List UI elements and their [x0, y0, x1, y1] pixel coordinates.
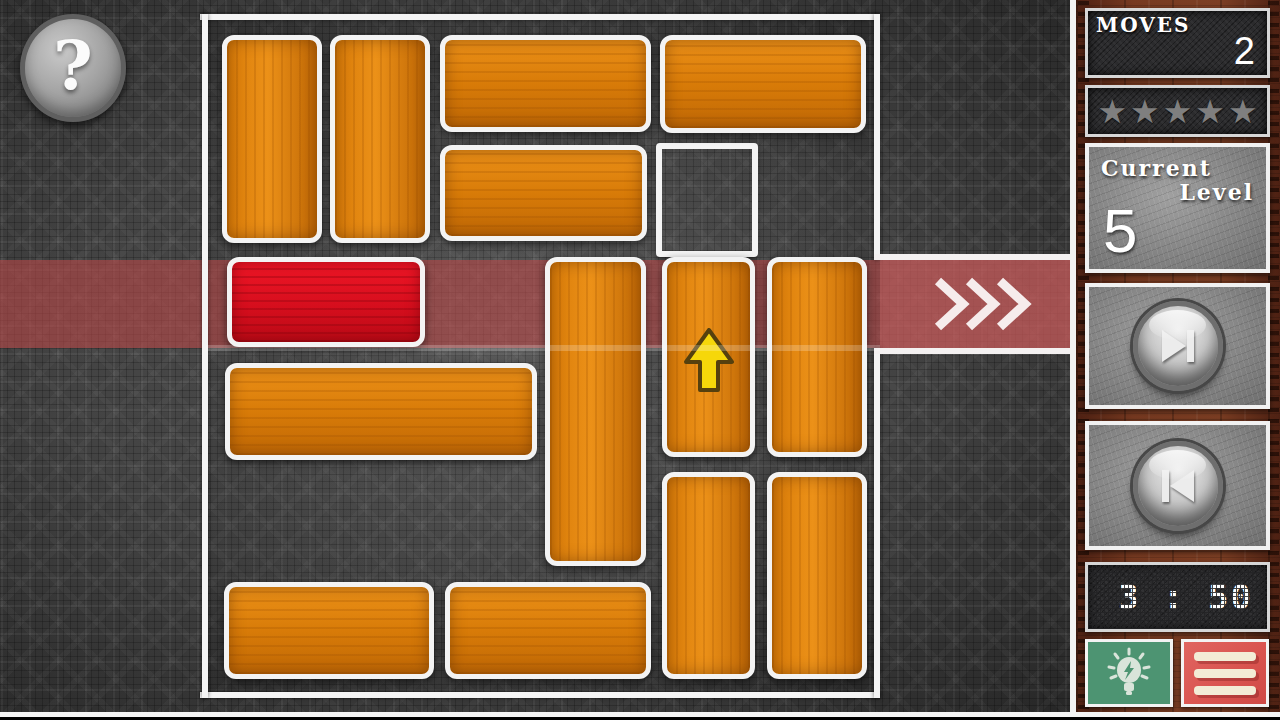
orange-block-c5-r1[interactable] — [660, 35, 866, 133]
previous-level-button[interactable] — [1133, 441, 1223, 531]
exit-stripe-top-line — [874, 254, 1072, 260]
star-rating: ★★★★★ — [1088, 88, 1267, 134]
orange-block-c1-r6[interactable] — [224, 582, 434, 679]
skip-previous-icon — [1157, 467, 1199, 505]
orange-block-c3-r2[interactable] — [440, 145, 647, 241]
red-hero-block[interactable] — [227, 257, 425, 347]
level-label-line2: Level — [1179, 179, 1254, 205]
help-label: ? — [53, 25, 93, 105]
timer-value: 3 : 50 — [1118, 577, 1253, 617]
board-area: ? — [0, 0, 1072, 720]
orange-block-c1-r1[interactable] — [222, 35, 322, 243]
next-level-panel — [1085, 283, 1270, 409]
hint-target-cell — [656, 143, 758, 257]
orange-block-c2-r1[interactable] — [330, 35, 430, 243]
orange-block-c5-r5[interactable] — [662, 472, 755, 679]
level-value: 5 — [1103, 195, 1137, 266]
star-icon: ★ — [1195, 95, 1225, 128]
board-frame-right-upper — [874, 14, 880, 260]
star-icon: ★ — [1098, 95, 1128, 128]
menu-bar — [1194, 652, 1256, 661]
stars-panel: ★★★★★ — [1085, 85, 1270, 137]
hint-button[interactable] — [1085, 639, 1173, 707]
timer-panel: 3 : 50 — [1085, 562, 1270, 632]
board-frame-right-lower — [874, 348, 880, 698]
star-icon: ★ — [1130, 95, 1160, 128]
orange-block-c6-r3[interactable] — [767, 257, 867, 457]
star-icon: ★ — [1163, 95, 1193, 128]
menu-button[interactable] — [1181, 639, 1269, 707]
moves-label: MOVES — [1096, 13, 1190, 37]
moves-panel: MOVES 2 — [1085, 8, 1270, 78]
orange-block-c6-r5[interactable] — [767, 472, 867, 679]
lightbulb-icon — [1104, 647, 1154, 699]
next-level-button[interactable] — [1133, 301, 1223, 391]
exit-chevrons-icon — [932, 276, 1032, 332]
board-frame-left — [202, 14, 208, 698]
menu-bar — [1194, 686, 1256, 695]
exit-stripe-bottom-line — [874, 348, 1072, 354]
orange-block-c4-r3[interactable] — [545, 257, 646, 566]
up-arrow-icon — [683, 328, 735, 392]
board-frame-bottom — [200, 692, 880, 698]
level-panel: Current Level 5 — [1085, 143, 1270, 273]
sidebar-divider — [1070, 0, 1076, 720]
previous-level-panel — [1085, 421, 1270, 550]
board-frame-top — [200, 14, 880, 20]
star-icon: ★ — [1228, 95, 1258, 128]
orange-block-c3-r6[interactable] — [445, 582, 651, 679]
moves-value: 2 — [1234, 30, 1255, 73]
level-label-line1: Current — [1101, 155, 1212, 181]
exit-stripe-faint-line — [206, 345, 880, 351]
orange-block-c5-r3[interactable] — [662, 257, 755, 457]
game-screen: ? MOVES 2 ★★★★★ Current Level 5 — [0, 0, 1280, 720]
help-button[interactable]: ? — [20, 14, 126, 122]
skip-next-icon — [1157, 327, 1199, 365]
orange-block-c3-r1[interactable] — [440, 35, 651, 132]
menu-bar — [1194, 669, 1256, 678]
orange-block-c1-r4[interactable] — [225, 363, 537, 460]
